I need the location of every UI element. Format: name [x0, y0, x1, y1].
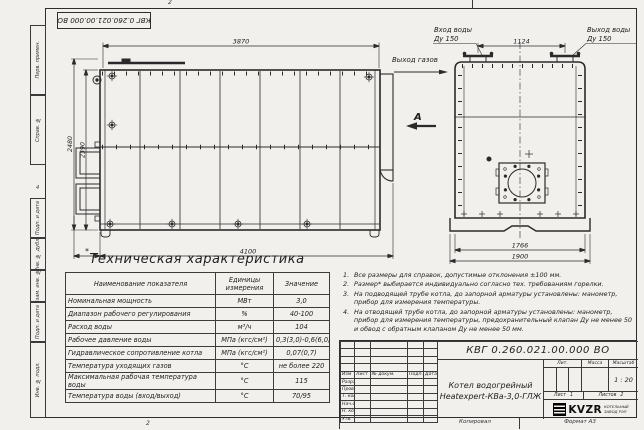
spec-header-row: Наименование показателя Единицы измерени…	[66, 273, 330, 295]
title-block: Изм Лист № докум. Подп. Дата Разраб. Про…	[339, 340, 637, 418]
product-name-cell: Котел водогрейный Heatexpert-КВа-3,0-ГЛЖ	[437, 359, 543, 419]
mass-cell	[581, 367, 608, 391]
dim-1766: 1766	[512, 242, 529, 250]
spec-value: 115	[274, 373, 330, 390]
fold-mark-top: 2	[168, 0, 172, 6]
dim-2390: 2390	[80, 142, 87, 158]
spec-value: не более 220	[274, 360, 330, 373]
margin-label: Инв. № дубл.	[35, 237, 41, 272]
margin-box-inv-podl: Инв. № подл.	[30, 342, 46, 418]
fold-mark-left: 4	[36, 185, 39, 191]
water-outlet-dn: Ду 150	[586, 35, 611, 43]
spec-name: Гидравлическое сопротивление котла	[66, 347, 216, 360]
water-inlet-label: Вход воды	[434, 26, 473, 34]
title-block-doc-number: КВГ 0.260.021.00.000 ВО	[437, 341, 638, 359]
spec-table-title: Техническая характеристика	[65, 252, 329, 267]
spec-name: Номинальная мощность	[66, 295, 216, 308]
product-name-line1: Котел водогрейный	[449, 381, 533, 392]
spec-header-name: Наименование показателя	[66, 273, 216, 295]
company-name-line2: ЗАВОД РЭП	[604, 410, 629, 414]
margin-label: Инв. № подл.	[35, 362, 41, 397]
spec-name: Диапазон рабочего регулирования	[66, 308, 216, 321]
spec-unit: °С	[216, 390, 274, 403]
margin-box-sprav-no: Справ. №	[30, 95, 46, 165]
notes-list: 1. Все размеры для справок, допустимые о…	[343, 271, 637, 334]
boiler-front-view: 3870 2480 2390 4100 *	[48, 30, 403, 275]
water-inlet-dn: Ду 150	[433, 35, 458, 43]
spec-header-value: Значение	[274, 273, 330, 295]
sheets-value: 2	[620, 393, 623, 398]
spec-unit: МВт	[216, 295, 274, 308]
note-number: 3.	[343, 290, 354, 307]
gas-outlet-label: Выход газов	[392, 56, 438, 64]
fold-tick-bottom-2	[519, 418, 520, 429]
sheet-label: Лист	[554, 393, 566, 398]
spec-unit: МПа (кгс/см²)	[216, 347, 274, 360]
scale-value: 1 : 20	[608, 367, 638, 391]
spec-value: 0,07(0,7)	[274, 347, 330, 360]
spec-row: Максимальная рабочая температура воды °С…	[66, 373, 330, 390]
boiler-side-view: 1124 Вход воды Ду 150 Выход воды Ду 150 …	[390, 20, 644, 270]
margin-label: Подп. и дата	[35, 305, 41, 339]
spec-unit: МПа (кгс/см²)	[216, 334, 274, 347]
note-number: 4.	[343, 308, 354, 333]
spec-row: Номинальная мощность МВт 3,0	[66, 295, 330, 308]
spec-row: Расход воды м³/ч 104	[66, 321, 330, 334]
note-text: Все размеры для справок, допустимые откл…	[354, 271, 637, 279]
revision-header-row: Изм Лист № докум. Подп. Дата	[341, 371, 438, 378]
copied-label: Копировал	[435, 419, 515, 425]
kvzr-logo-icon	[553, 403, 566, 416]
dim-1124: 1124	[513, 38, 530, 46]
spec-row: Диапазон рабочего регулирования % 40-100	[66, 308, 330, 321]
margin-box-podp-data-1: Подп. и дата	[30, 198, 46, 238]
sheet-value: 1	[570, 393, 573, 398]
margin-box-perv-primen: Перв. примен.	[30, 25, 46, 95]
company-cell: KVZR КОТЕЛЬНЫЙ ЗАВОД РЭП	[543, 399, 638, 419]
spec-value: 104	[274, 321, 330, 334]
spec-row: Температура воды (вход/выход) °С 70/95	[66, 390, 330, 403]
spec-value: 0,3(3,0)-0,6(6,0)	[274, 334, 330, 347]
note-text: На отводящей трубе котла, до запорной ар…	[354, 308, 637, 333]
sheets-label: Листов	[599, 393, 617, 398]
scale-header: Масштаб	[608, 359, 638, 367]
spec-value: 3,0	[274, 295, 330, 308]
spec-header-unit: Единицы измерения	[216, 273, 274, 295]
margin-box-vzam-inv: Взам. инв. №	[30, 270, 46, 302]
title-block-revision-grid: Изм Лист № докум. Подп. Дата Разраб. Про…	[340, 341, 438, 423]
margin-label: Перв. примен.	[35, 41, 41, 79]
fold-tick-top	[472, 0, 473, 8]
lit-cell-1	[543, 367, 556, 391]
drawing-sheet: Перв. примен. Справ. № Подп. и дата Инв.…	[0, 0, 644, 430]
company-name: КОТЕЛЬНЫЙ ЗАВОД РЭП	[604, 405, 629, 414]
spec-name: Максимальная рабочая температура воды	[66, 373, 216, 390]
spec-table: Наименование показателя Единицы измерени…	[65, 272, 330, 403]
spec-name: Рабочее давление воды	[66, 334, 216, 347]
dim-2480: 2480	[67, 136, 74, 152]
note-item: 3. На подводящей трубе котла, до запорно…	[343, 290, 637, 307]
spec-name: Расход воды	[66, 321, 216, 334]
margin-label: Подп. и дата	[35, 201, 41, 235]
note-number: 2.	[343, 280, 354, 288]
note-item: 2. Размер* выбирается индивидуально согл…	[343, 280, 637, 288]
lit-cell-3	[568, 367, 581, 391]
note-number: 1.	[343, 271, 354, 279]
margin-label: Взам. инв. №	[35, 269, 41, 304]
spec-row: Рабочее давление воды МПа (кгс/см²) 0,3(…	[66, 334, 330, 347]
spec-value: 40-100	[274, 308, 330, 321]
view-a-label: А	[413, 112, 422, 123]
note-item: 1. Все размеры для справок, допустимые о…	[343, 271, 637, 279]
dim-1900: 1900	[512, 253, 529, 261]
spec-name: Температура воды (вход/выход)	[66, 390, 216, 403]
note-item: 4. На отводящей трубе котла, до запорной…	[343, 308, 637, 333]
spec-name: Температура уходящих газов	[66, 360, 216, 373]
spec-unit: °С	[216, 373, 274, 390]
spec-row: Температура уходящих газов °С не более 2…	[66, 360, 330, 373]
fold-mark-bottom: 2	[146, 420, 150, 427]
note-text: На подводящей трубе котла, до запорной а…	[354, 290, 637, 307]
sheets-cell: Листов 2	[583, 391, 638, 399]
dim-3870: 3870	[233, 38, 250, 46]
margin-box-inv-dubl: Инв. № дубл.	[30, 238, 46, 270]
spec-unit: %	[216, 308, 274, 321]
spec-value: 70/95	[274, 390, 330, 403]
mass-header: Масса	[581, 359, 608, 367]
spec-table-body: Номинальная мощность МВт 3,0 Диапазон ра…	[66, 295, 330, 403]
doc-number-stamp: КВГ 0.260.021.00.000 ВО	[57, 12, 151, 29]
sheet-cell: Лист 1	[543, 391, 583, 399]
lit-header: Лит.	[543, 359, 581, 367]
note-text: Размер* выбирается индивидуально согласн…	[354, 280, 637, 288]
format-label: Формат А3	[540, 419, 620, 425]
kvzr-logo-text: KVZR	[568, 404, 602, 416]
lit-cell-2	[556, 367, 568, 391]
spec-row: Гидравлическое сопротивление котла МПа (…	[66, 347, 330, 360]
spec-unit: м³/ч	[216, 321, 274, 334]
margin-box-podp-data-2: Подп. и дата	[30, 302, 46, 342]
product-name-line2: Heatexpert-КВа-3,0-ГЛЖ	[440, 392, 542, 403]
spec-unit: °С	[216, 360, 274, 373]
water-outlet-label: Выход воды	[587, 26, 631, 34]
margin-label: Справ. №	[35, 117, 41, 142]
